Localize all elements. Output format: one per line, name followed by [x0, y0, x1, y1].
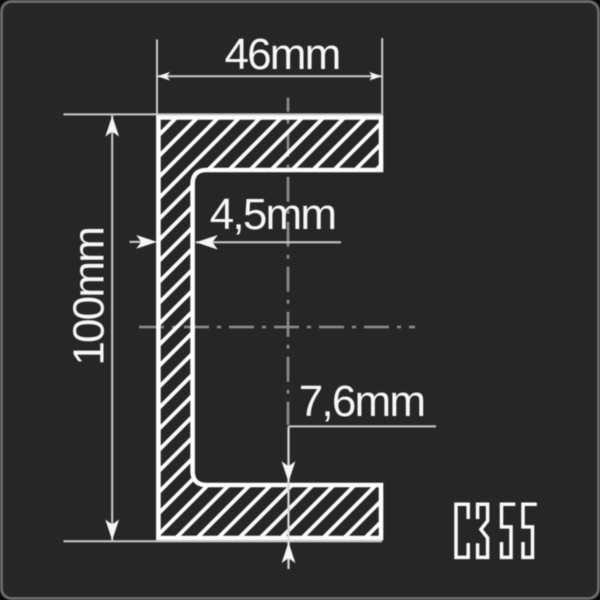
svg-text:4,5mm: 4,5mm: [210, 190, 335, 239]
svg-text:7,6mm: 7,6mm: [299, 377, 424, 426]
svg-text:100mm: 100mm: [64, 228, 113, 366]
svg-text:46mm: 46mm: [224, 30, 339, 79]
